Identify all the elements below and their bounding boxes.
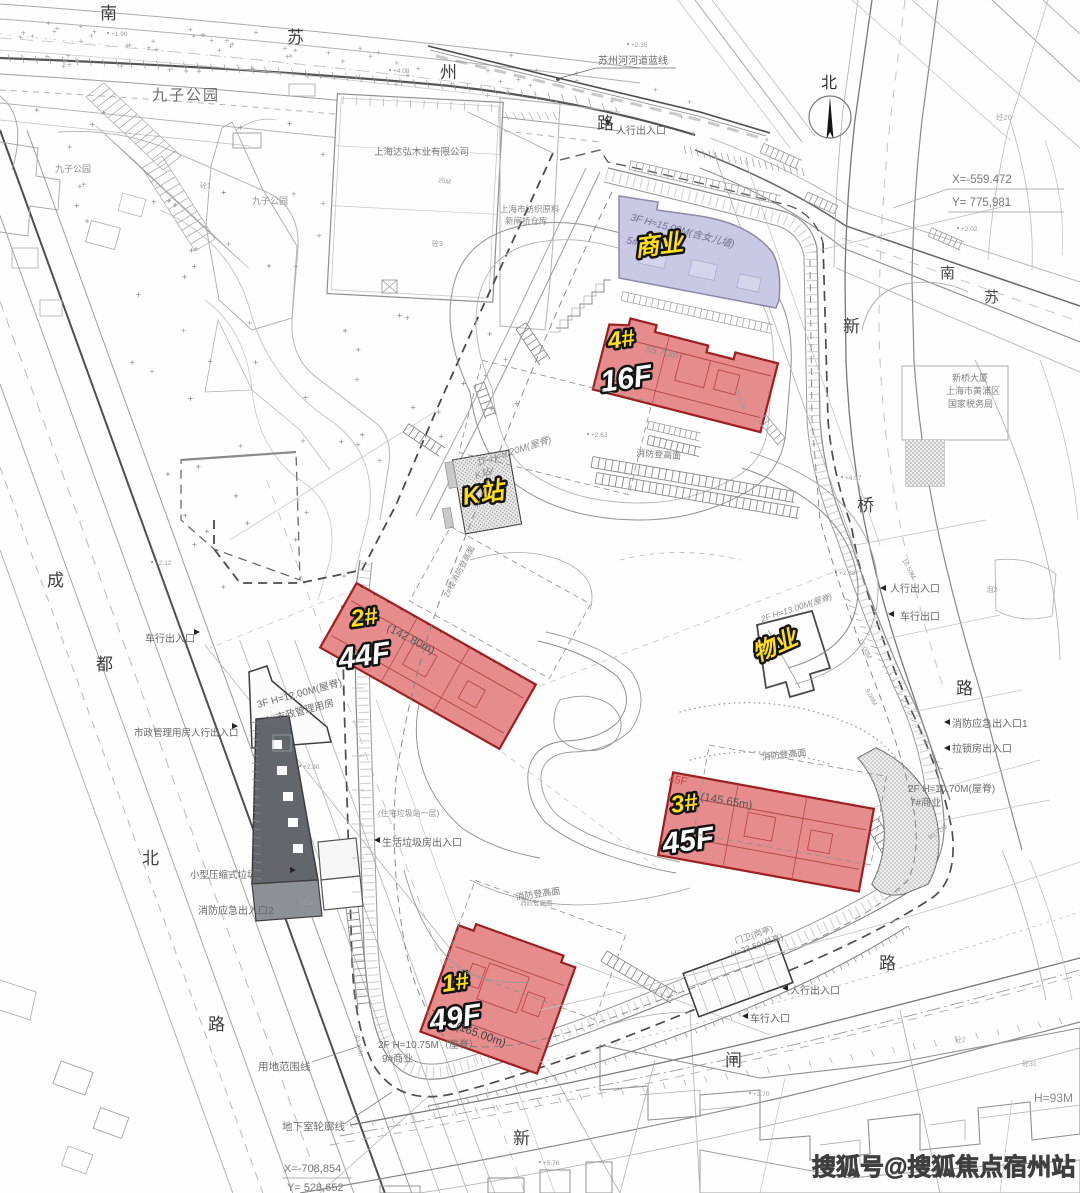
svg-text:2F H≈10.70M(屋脊): 2F H≈10.70M(屋脊) — [908, 782, 995, 795]
svg-text:+2.02: +2.02 — [961, 226, 978, 233]
svg-text:消防应急出入口2: 消防应急出入口2 — [198, 904, 274, 917]
svg-text:北: 北 — [821, 74, 837, 92]
svg-text:路: 路 — [956, 679, 973, 698]
svg-text:砼1: 砼1 — [200, 181, 211, 190]
svg-text:+2.63: +2.63 — [591, 432, 608, 439]
svg-text:9#商业: 9#商业 — [382, 1052, 413, 1065]
svg-text:都: 都 — [96, 655, 113, 674]
svg-text:拉锁房出入口: 拉锁房出入口 — [952, 742, 1012, 755]
svg-text:路: 路 — [597, 114, 614, 133]
svg-text:砼3: 砼3 — [432, 239, 443, 248]
svg-text:+2.88: +2.88 — [839, 570, 856, 577]
svg-text:搜狐号@搜狐焦点宿州站: 搜狐号@搜狐焦点宿州站 — [812, 1153, 1075, 1181]
svg-text:+2.80: +2.80 — [303, 764, 320, 771]
svg-text:4#: 4# — [605, 324, 637, 355]
svg-text:车行出入口: 车行出入口 — [145, 632, 195, 645]
svg-text:南: 南 — [100, 4, 117, 23]
svg-text:X=-708,854: X=-708,854 — [284, 1163, 341, 1175]
svg-text:人行出入口: 人行出入口 — [616, 124, 666, 137]
svg-text:苏州河河道蓝线: 苏州河河道蓝线 — [598, 54, 668, 67]
svg-text:+5.76: +5.76 — [543, 1160, 560, 1167]
svg-text:桥: 桥 — [857, 496, 874, 515]
svg-text:砼2: 砼2 — [955, 1035, 966, 1044]
svg-text:3#: 3# — [669, 788, 700, 819]
svg-text:车行出口: 车行出口 — [900, 610, 940, 623]
svg-text:上海市黄浦区: 上海市黄浦区 — [946, 385, 1000, 396]
svg-text:地下室轮廓线: 地下室轮廓线 — [282, 1120, 345, 1133]
svg-text:X=-559.472: X=-559.472 — [952, 174, 1012, 186]
svg-text:成: 成 — [47, 571, 64, 590]
svg-text:2#: 2# — [348, 602, 380, 633]
svg-text:新: 新 — [513, 1129, 530, 1148]
svg-text:人行出入口: 人行出入口 — [890, 582, 940, 595]
svg-text:南: 南 — [940, 265, 955, 282]
svg-text:九子公园: 九子公园 — [55, 164, 91, 174]
svg-text:上海市纺织原料: 上海市纺织原料 — [500, 204, 560, 214]
svg-text:苏: 苏 — [984, 289, 999, 306]
svg-text:1#: 1# — [440, 967, 471, 998]
svg-text:H=93M: H=93M — [1034, 1091, 1073, 1105]
svg-text:砼31: 砼31 — [1022, 1059, 1037, 1068]
svg-text:闸: 闸 — [725, 1051, 742, 1070]
svg-text:市政管理用房人行出入口: 市政管理用房人行出入口 — [134, 727, 239, 739]
svg-text:Y= 775,981: Y= 775,981 — [952, 197, 1011, 209]
svg-text:消防应急出入口1: 消防应急出入口1 — [952, 717, 1028, 730]
svg-text:新桥大厦: 新桥大厦 — [952, 372, 988, 383]
svg-text:+1.90: +1.90 — [111, 31, 128, 38]
svg-text:新: 新 — [843, 317, 860, 336]
svg-text:(住宅垃圾站一层): (住宅垃圾站一层) — [378, 808, 440, 818]
svg-text:州: 州 — [440, 63, 457, 82]
svg-text:九子公园: 九子公园 — [152, 87, 220, 104]
svg-text:车行入口: 车行入口 — [750, 1012, 790, 1025]
svg-text:泡2: 泡2 — [986, 584, 998, 594]
svg-text:用地范围线: 用地范围线 — [258, 1060, 311, 1073]
svg-text:苏: 苏 — [287, 28, 304, 47]
svg-text:+2.44: +2.44 — [299, 900, 316, 907]
svg-text:+2.70: +2.70 — [753, 1091, 770, 1098]
svg-text:经20: 经20 — [996, 112, 1012, 122]
svg-text:+4.08: +4.08 — [393, 68, 410, 75]
svg-text:九子公园: 九子公园 — [252, 196, 288, 206]
svg-text:上海达弘木业有限公司: 上海达弘木业有限公司 — [374, 146, 469, 158]
svg-text:国家税务局: 国家税务局 — [948, 398, 993, 409]
svg-text:+4.07: +4.07 — [845, 475, 862, 482]
svg-text:北: 北 — [142, 849, 159, 868]
svg-text:7#商业: 7#商业 — [910, 796, 941, 809]
svg-text:2F H=10.75M（屋脊）: 2F H=10.75M（屋脊） — [378, 1038, 479, 1051]
svg-text:路: 路 — [208, 1015, 225, 1034]
svg-text:+2.35: +2.35 — [631, 42, 648, 49]
svg-text:小型压缩式垃圾站出入口: 小型压缩式垃圾站出入口 — [190, 869, 295, 881]
svg-text:+2.12: +2.12 — [155, 560, 172, 567]
